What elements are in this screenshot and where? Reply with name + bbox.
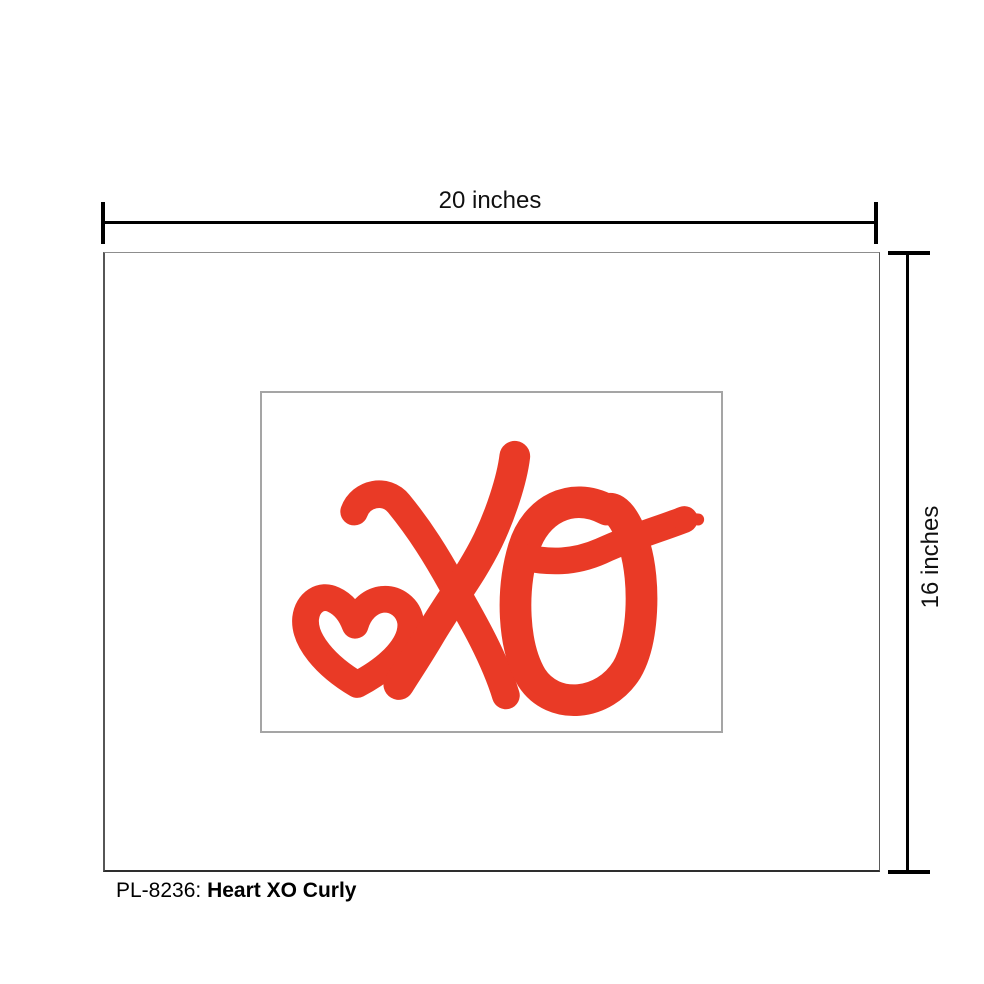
width-dimension-tick-right [874, 202, 878, 244]
o-tail-tip-icon [678, 519, 698, 522]
width-dimension-tick-left [101, 202, 105, 244]
height-dimension-tick-top [888, 251, 930, 255]
heart-xo-artwork [262, 393, 721, 731]
caption: PL-8236: Heart XO Curly [116, 879, 356, 903]
product-dimension-mockup: 20 inches 16 inches PL-8236: Heart XO Cu… [0, 0, 984, 984]
art-opening-frame [260, 391, 723, 733]
caption-sku: PL-8236: [116, 879, 201, 902]
height-dimension-label: 16 inches [918, 506, 944, 609]
width-dimension-line [103, 221, 877, 224]
height-dimension-line [906, 253, 909, 873]
height-dimension-tick-bottom [888, 870, 930, 874]
caption-title: Heart XO Curly [207, 879, 356, 902]
width-dimension-label: 20 inches [103, 188, 877, 214]
